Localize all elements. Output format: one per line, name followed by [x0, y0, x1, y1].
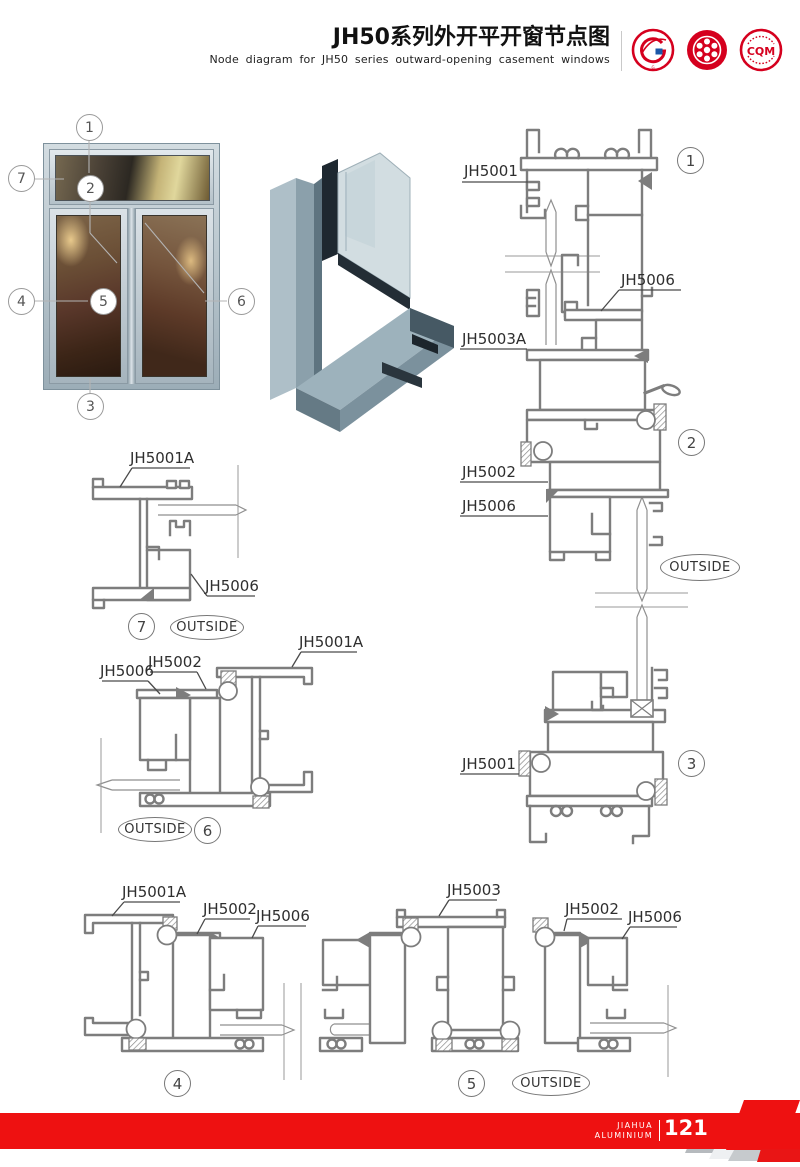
- part-label-jh5003a: JH5003A: [462, 330, 526, 348]
- section-marker-1: 1: [677, 147, 704, 174]
- callout-4: 4: [8, 288, 35, 315]
- gasket-roll: [536, 928, 555, 947]
- gasket-hatch: [519, 751, 530, 776]
- callout-6: 6: [228, 288, 255, 315]
- part-label-jh5006: JH5006: [256, 907, 310, 925]
- section-marker-5: 5: [458, 1070, 485, 1097]
- footer-brand-top: JIAHUA: [540, 1121, 653, 1131]
- part-label-jh5006: JH5006: [628, 908, 682, 926]
- gasket-roll: [637, 411, 655, 429]
- part-label-jh5001a: JH5001A: [122, 883, 186, 901]
- callout-5: 5: [90, 288, 117, 315]
- callout-2: 2: [77, 175, 104, 202]
- footer-divider: [659, 1120, 660, 1141]
- part-label-jh5006: JH5006: [621, 271, 675, 289]
- gasket-roll: [158, 926, 177, 945]
- section-marker-4: 4: [164, 1070, 191, 1097]
- part-label-jh5006: JH5006: [462, 497, 516, 515]
- gasket-roll: [637, 782, 655, 800]
- gasket-hatch: [436, 1039, 452, 1051]
- gasket-hatch: [502, 1039, 518, 1051]
- section-marker-3: 3: [678, 750, 705, 777]
- gasket-roll: [433, 1022, 452, 1041]
- gasket-roll: [532, 754, 550, 772]
- gasket-hatch: [129, 1038, 146, 1050]
- part-label-jh5001: JH5001: [462, 755, 516, 773]
- gasket-roll: [127, 1020, 146, 1039]
- gasket-hatch: [654, 404, 666, 430]
- section-5-mullion-profile: [320, 910, 630, 1051]
- part-label-jh5002: JH5002: [148, 653, 202, 671]
- part-label-jh5001a: JH5001A: [130, 449, 194, 467]
- section-marker-2: 2: [678, 429, 705, 456]
- callout-7: 7: [8, 165, 35, 192]
- part-label-jh5002: JH5002: [565, 900, 619, 918]
- outside-label: OUTSIDE: [118, 817, 192, 842]
- section-3-sill-profile: [527, 668, 667, 843]
- catalog-page: JH50系列外开平开窗节点图 Node diagram for JH50 ser…: [0, 0, 800, 1167]
- part-label-jh5006: JH5006: [100, 662, 154, 680]
- gasket-roll: [219, 682, 237, 700]
- part-label-jh5006: JH5006: [205, 577, 259, 595]
- gasket-hatch: [655, 779, 667, 805]
- outside-label: OUTSIDE: [660, 554, 740, 581]
- footer-brand: JIAHUA ALUMINIUM: [540, 1121, 653, 1142]
- gasket-roll: [534, 442, 552, 460]
- part-label-jh5001a: JH5001A: [299, 633, 363, 651]
- callout-1: 1: [76, 114, 103, 141]
- gasket-roll: [402, 928, 421, 947]
- gasket-roll: [251, 778, 269, 796]
- page-number: 121: [664, 1116, 708, 1140]
- callout-3: 3: [77, 393, 104, 420]
- section-7-jamb-profile: [93, 479, 192, 608]
- part-label-jh5001: JH5001: [464, 162, 518, 180]
- part-label-jh5002: JH5002: [462, 463, 516, 481]
- section-marker-6: 6: [194, 817, 221, 844]
- section-marker-7: 7: [128, 613, 155, 640]
- outside-label: OUTSIDE: [170, 615, 244, 640]
- part-label-jh5002: JH5002: [203, 900, 257, 918]
- glazing-block: [631, 700, 653, 717]
- gasket-roll: [501, 1022, 520, 1041]
- photo-callout-lines: [35, 141, 227, 393]
- outside-label: OUTSIDE: [512, 1070, 590, 1096]
- gasket-hatch: [253, 796, 269, 808]
- node-diagram-linework: [0, 0, 800, 1167]
- gasket-hatch: [521, 442, 531, 466]
- part-label-jh5003: JH5003: [447, 881, 501, 899]
- footer-brand-bottom: ALUMINIUM: [540, 1131, 653, 1141]
